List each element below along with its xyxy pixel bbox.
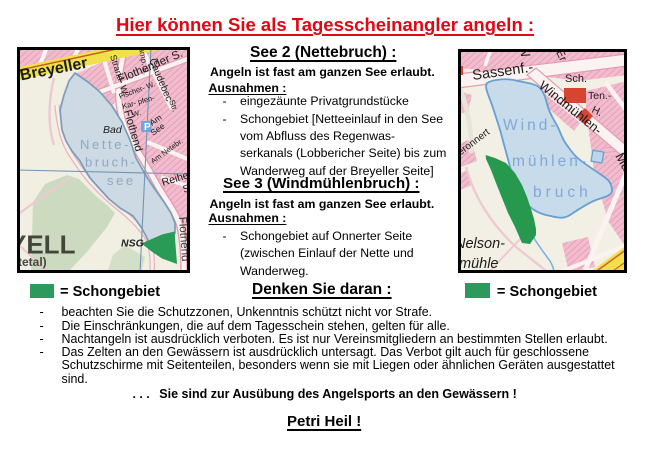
svg-text:Nelson-: Nelson- xyxy=(458,236,505,252)
svg-text:see: see xyxy=(107,173,136,188)
svg-text:mühlen-: mühlen- xyxy=(512,153,589,170)
svg-text:bruch: bruch xyxy=(533,184,592,201)
svg-text:Nette-: Nette- xyxy=(80,137,131,152)
svg-text:Bad: Bad xyxy=(103,124,123,136)
svg-text:tetal): tetal) xyxy=(18,255,47,269)
svg-text:bruch-: bruch- xyxy=(85,155,137,170)
svg-text:Sch.: Sch. xyxy=(565,73,587,85)
svg-text:Wind-: Wind- xyxy=(503,117,558,134)
svg-text:mühle: mühle xyxy=(459,256,499,272)
svg-text:Ten.-: Ten.- xyxy=(588,90,612,102)
svg-text:NSG: NSG xyxy=(121,238,144,250)
